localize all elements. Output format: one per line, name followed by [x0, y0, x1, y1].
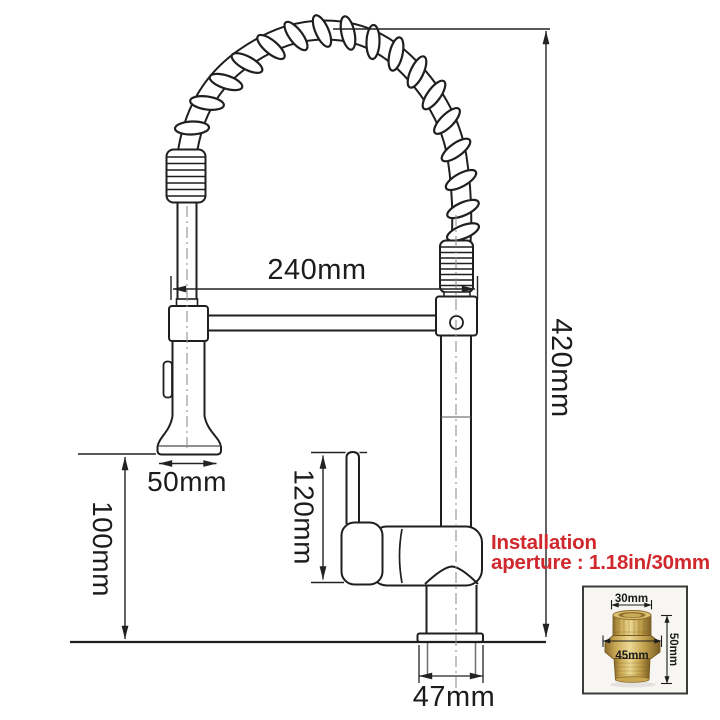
fitting-bore-inner	[623, 613, 642, 617]
spring-wraps	[175, 13, 481, 245]
inset-label-top-diameter: 30mm	[615, 593, 648, 605]
dense-coil-left	[167, 150, 206, 203]
handle-lever	[347, 452, 360, 524]
sprayer-button	[164, 362, 173, 398]
dimension-100: 100mm	[78, 454, 156, 639]
base-flange	[418, 634, 484, 643]
spring-spout	[167, 13, 482, 293]
dimension-240: 240mm	[171, 254, 478, 300]
installation-note-line2: aperture : 1.18in/30mm	[491, 553, 710, 573]
installation-note: Installation aperture : 1.18in/30mm	[491, 533, 710, 573]
inset-label-flange-width: 45mm	[615, 650, 648, 662]
under-counter-shank	[428, 643, 476, 677]
wand-holder-block	[169, 306, 208, 341]
handle-hub	[342, 523, 383, 585]
diagram-canvas: 240mm 420mm 50mm 100mm 120mm 47mm	[0, 0, 720, 720]
dim-label-sprayer-clearance: 100mm	[87, 501, 118, 597]
inset-label-fitting-height: 50mm	[667, 633, 679, 666]
dimension-50: 50mm	[147, 464, 227, 498]
dim-label-handle-height: 120mm	[289, 469, 320, 565]
valve-body	[371, 527, 482, 586]
pull-down-sprayer	[158, 203, 222, 455]
installation-note-line1: Installation	[491, 533, 710, 553]
spout-arm	[208, 316, 436, 331]
faucet-dimension-diagram: 240mm 420mm 50mm 100mm 120mm 47mm	[0, 0, 720, 720]
faucet-body	[342, 292, 484, 677]
dim-label-base-width: 47mm	[413, 681, 496, 713]
dim-label-total-height: 420mm	[545, 318, 577, 417]
dim-label-sprayer-width: 50mm	[147, 466, 227, 497]
fitting-bottom-rim	[615, 677, 649, 683]
installation-inset: 30mm 45mm 50mm	[583, 587, 687, 694]
dim-label-spout-reach: 240mm	[267, 254, 366, 286]
sprayer-flare	[158, 416, 222, 455]
dimension-47: 47mm	[413, 645, 496, 713]
